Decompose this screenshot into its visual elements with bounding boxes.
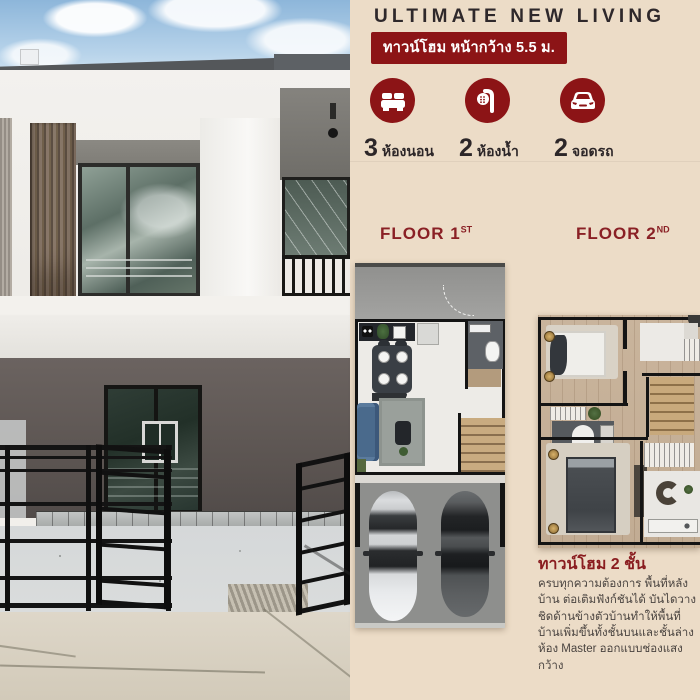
plan2-wall [623,371,627,405]
driveway [0,612,350,700]
plan1-plate [396,373,408,385]
floor-2-ordinal: ND [657,224,670,234]
plan2-master-bed [566,457,616,533]
plan1-coffee-table [395,421,411,445]
floor-plan-2 [538,315,700,548]
window-rail [86,259,192,261]
neighbor-upper-wall [280,88,350,180]
plan2-wall [642,373,700,376]
plan1-plate [378,351,390,363]
plan1-bath-sink [469,324,491,333]
plan1-wall [458,413,461,475]
neighbor-window [282,177,350,259]
plan1-doormat [357,459,366,472]
plan2-wardrobe-strip [550,407,586,420]
bathroom-label: ห้องน้ำ [477,143,519,159]
porch-lintel [0,315,350,359]
plan1-plate [396,351,408,363]
plan1-chair [378,340,390,346]
flyer-canvas: ULTIMATE NEW LIVING ทาวน์โฮม หน้ากว้าง 5… [0,0,700,700]
plan2-wardrobe [684,339,700,361]
width-badge: ทาวน์โฮม หน้ากว้าง 5.5 ม. [371,32,567,64]
bathroom-count: 2 [459,134,473,162]
plan1-bath-wood-floor [467,369,501,387]
open-gate-left [96,444,170,609]
window-header-wall [76,140,200,165]
plan2-plant [588,407,601,420]
window-rail [86,275,192,277]
stat-bedrooms: 3ห้องนอน [364,78,456,163]
plan1-patio [355,263,505,319]
plan1-car-silver [369,491,417,621]
plan1-garage-curb [355,623,505,628]
wall-fixture [330,103,336,119]
townhouse-photo [0,0,350,700]
roof-vent [20,49,39,65]
plan1-front-step [355,475,505,483]
plan2-wall [538,317,700,320]
bedroom-label: ห้องนอน [382,143,434,159]
plan1-sink [393,326,406,339]
plan2-side-table [548,523,559,534]
plan1-plate [378,373,390,385]
plan2-wall [538,437,648,440]
stat-bathrooms: 2ห้องน้ำ [459,78,551,163]
parking-count: 2 [554,134,568,162]
description-heading: ทาวน์โฮม 2 ชั้น [538,552,646,577]
plan2-chair [656,481,680,505]
info-panel: ULTIMATE NEW LIVING ทาวน์โฮม หน้ากว้าง 5… [350,0,700,700]
plan2-side-table [544,371,555,382]
plan1-sofa [357,403,379,461]
plan1-wall [355,483,360,547]
plan2-wall [623,319,627,349]
plan1-patio-edge [355,263,505,267]
plan1-plant [399,447,408,456]
neighbor-roofline [274,54,350,70]
bed-icon [370,78,415,123]
plan1-stairs [461,418,505,472]
plan2-wall [646,377,649,437]
car-icon [560,78,605,123]
plan1-fridge [417,323,439,345]
plan2-closet [644,443,694,467]
floor-1-ordinal: ST [461,224,473,234]
open-gate-right [296,452,350,615]
white-column [200,118,280,318]
plan2-wall [538,403,628,406]
description-body: ครบทุกความต้องการ พื้นที่หลังบ้าน ต่อเติ… [538,576,696,674]
wood-slat-panel [30,123,76,299]
floor-2-header: FLOOR 2ND [576,224,670,244]
plan2-plant [684,485,693,494]
parking-label: จอดรถ [572,143,614,159]
wall-lamp [328,128,338,138]
plan2-side-table [544,331,555,342]
stat-parking: 2จอดรถ [554,78,646,163]
plan2-wall [538,317,541,545]
bedroom-count: 3 [364,134,378,162]
plan2-stairs [650,377,694,435]
plan1-plant [377,324,389,339]
window-rail [86,267,192,269]
upper-window [78,163,200,297]
plan1-wall [465,319,468,389]
floor-1-header: FLOOR 1ST [380,224,472,244]
shower-icon [465,78,510,123]
plan1-wall [500,483,505,547]
floor-plan-1 [355,263,505,628]
plan2-bath-fixtures [648,519,698,533]
plan1-chair [395,340,407,346]
plan2-wall [640,441,643,545]
plan2-side-table [548,449,559,460]
page-title: ULTIMATE NEW LIVING [374,6,694,28]
balcony-railing [282,255,350,297]
plan1-stove [362,326,373,337]
plan2-wall [538,542,700,545]
floor-slab [0,296,350,316]
plan1-car-dark [441,491,489,617]
plan1-toilet [485,341,500,362]
neighbor-slat-panel [0,118,12,300]
